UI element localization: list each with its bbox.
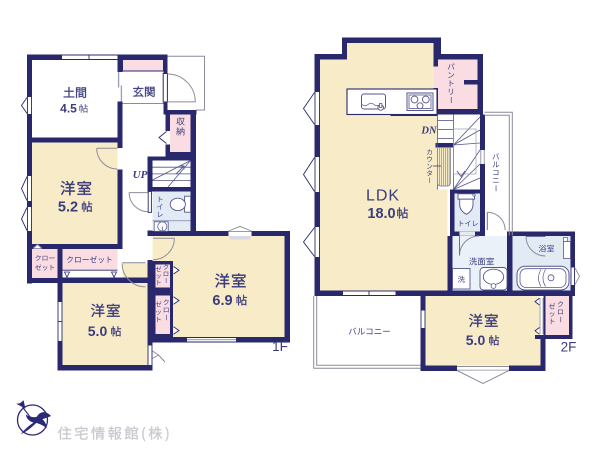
svg-text:18.0: 18.0 bbox=[367, 206, 395, 222]
svg-text:5.0: 5.0 bbox=[88, 323, 108, 339]
svg-text:6.9: 6.9 bbox=[212, 293, 232, 309]
svg-text:5.2: 5.2 bbox=[58, 200, 78, 216]
svg-text:DN: DN bbox=[420, 126, 437, 137]
svg-text:2F: 2F bbox=[561, 340, 577, 355]
svg-text:UP: UP bbox=[133, 169, 148, 181]
svg-text:5.0: 5.0 bbox=[466, 332, 486, 348]
svg-text:LDK: LDK bbox=[366, 188, 400, 205]
svg-text:1F: 1F bbox=[272, 339, 288, 354]
svg-text:4.5: 4.5 bbox=[60, 102, 77, 116]
